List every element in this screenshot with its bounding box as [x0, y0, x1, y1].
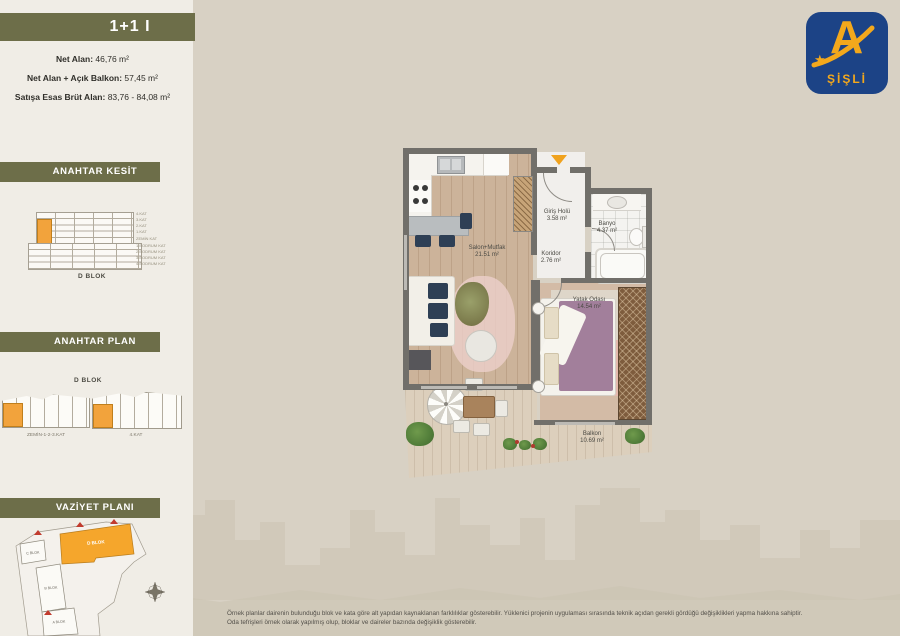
kitchen-sink	[437, 156, 465, 174]
balcony-table	[463, 396, 495, 418]
window	[404, 235, 407, 290]
key-plan-block-caption: D BLOK	[48, 377, 128, 384]
bed	[540, 298, 616, 396]
room-name: Salon+Mutfak	[469, 245, 506, 252]
room-label-balcony: Balkon 10.69 m²	[580, 431, 604, 445]
net-plus-balcony-label: Net Alan + Açık Balkon:	[27, 73, 122, 83]
key-section-diagram-lower	[28, 243, 142, 270]
dining-chair	[439, 235, 455, 247]
window	[477, 386, 517, 389]
unit-type-header: 1+1 I	[0, 13, 195, 41]
sofa	[407, 276, 455, 346]
sink-basin	[440, 159, 450, 170]
room-name: Koridor	[541, 251, 561, 258]
sink-basin	[452, 159, 461, 170]
room-area: 3.58 m²	[544, 216, 570, 223]
unit-type-label: 1+1 I	[109, 18, 150, 35]
gross-area-value: 83,76 - 84,08 m²	[108, 92, 170, 102]
key-section-block-caption: D BLOK	[52, 273, 132, 280]
key-plan-variant-label: 4.KAT	[96, 433, 176, 438]
plant	[533, 438, 547, 450]
bathtub-inner	[600, 253, 645, 279]
room-area: 21.51 m²	[469, 252, 506, 259]
key-section-diagram-upper	[36, 212, 134, 245]
kitchen-cabinet	[483, 154, 509, 175]
flower	[515, 440, 519, 444]
compass-icon	[145, 582, 165, 602]
flower	[531, 444, 535, 448]
net-plus-balcony-value: 57,45 m²	[124, 73, 158, 83]
area-summary: Net Alan: 46,76 m² Net Alan + Açık Balko…	[0, 50, 185, 107]
room-label-entry-hall: Giriş Holü 3.58 m²	[544, 209, 570, 223]
room-area: 14.54 m²	[573, 304, 606, 311]
key-plan-title: ANAHTAR PLAN	[54, 336, 136, 347]
sidebar: 1+1 I Net Alan: 46,76 m² Net Alan + Açık…	[0, 0, 193, 636]
wall	[646, 188, 652, 283]
burner	[413, 185, 419, 191]
sofa-cushion	[428, 283, 448, 299]
key-plan-top-floor	[92, 392, 182, 429]
balcony-chair	[453, 420, 470, 433]
disclaimer-line-2: Oda tefrişleri örnek olarak yapılmış olu…	[227, 618, 877, 627]
wall	[646, 283, 652, 425]
room-area: 10.69 m²	[580, 438, 604, 445]
disclaimer: Örnek planlar dairenin bulunduğu blok ve…	[227, 609, 877, 627]
room-area: 2.76 m²	[541, 258, 561, 265]
wall	[561, 278, 652, 283]
highlighted-unit	[93, 404, 113, 428]
room-label-bathroom: Banyo 4.37 m²	[597, 221, 617, 235]
logo-brand-name: ŞİŞLİ	[806, 72, 888, 86]
key-plan-lower-floors	[2, 394, 90, 428]
net-area-value: 46,76 m²	[95, 54, 129, 64]
armchair	[465, 330, 497, 362]
section-header-key-section: ANAHTAR KESİT	[0, 162, 160, 182]
nightstand	[532, 302, 545, 315]
site-plan-title: VAZİYET PLANI	[56, 502, 134, 513]
burner	[413, 198, 419, 204]
stove	[409, 180, 431, 212]
room-name: Yatak Odası	[573, 297, 606, 304]
floor-plan: Salon+Mutfak 21.51 m² Giriş Holü 3.58 m²…	[403, 140, 659, 488]
floor-label: ZEMİN KAT	[136, 236, 180, 242]
wall	[585, 167, 591, 227]
highlighted-unit	[3, 403, 23, 427]
bathroom-vanity	[593, 194, 641, 211]
entry-closet	[513, 176, 533, 232]
pillow	[544, 307, 559, 339]
nightstand	[532, 380, 545, 393]
room-label-corridor: Koridor 2.76 m²	[541, 251, 561, 265]
room-name: Balkon	[580, 431, 604, 438]
plant	[406, 422, 434, 446]
wall	[403, 148, 537, 154]
floor-label: 4.BODRUM KAT	[136, 261, 180, 267]
site-plan-map: C BLOK D BLOK B BLOK A BLOK	[8, 514, 178, 636]
key-section-title: ANAHTAR KESİT	[53, 166, 138, 177]
net-area-line: Net Alan: 46,76 m²	[0, 50, 185, 69]
disclaimer-line-1: Örnek planlar dairenin bulunduğu blok ve…	[227, 609, 877, 618]
umbrella-pole	[444, 402, 448, 406]
balcony-chair	[473, 423, 490, 436]
washbasin	[607, 196, 627, 209]
highlighted-unit-column	[37, 219, 52, 246]
bedroom-wardrobe	[618, 287, 648, 420]
window	[421, 386, 467, 389]
room-label-bedroom: Yatak Odası 14.54 m²	[573, 297, 606, 311]
net-area-label: Net Alan:	[56, 54, 93, 64]
room-name: Banyo	[597, 221, 617, 228]
room-label-living-kitchen: Salon+Mutfak 21.51 m²	[469, 245, 506, 259]
section-header-key-plan: ANAHTAR PLAN	[0, 332, 160, 352]
sofa-cushion	[430, 323, 448, 337]
gross-area-label: Satışa Esas Brüt Alan:	[15, 92, 105, 102]
burner	[422, 185, 428, 191]
dining-chair	[460, 213, 472, 229]
wall	[591, 188, 652, 194]
pillow	[544, 353, 559, 385]
balcony-chair	[495, 400, 508, 417]
room-name: Giriş Holü	[544, 209, 570, 216]
window	[555, 422, 615, 425]
gross-area-line: Satışa Esas Brüt Alan: 83,76 - 84,08 m²	[0, 88, 185, 107]
key-plan-variant-label: ZEMİN-1-2-3.KAT	[6, 433, 86, 438]
sofa-cushion	[428, 303, 448, 319]
plant	[625, 428, 645, 444]
dining-chair	[415, 235, 431, 247]
logo-letter-a: A	[830, 10, 870, 64]
logo-star-icon: ★	[814, 52, 826, 68]
floor-label: 1.KAT	[136, 229, 180, 235]
sisli-logo: A ★ ŞİŞLİ	[806, 12, 888, 94]
brochure-page: 1+1 I Net Alan: 46,76 m² Net Alan + Açık…	[0, 0, 900, 636]
net-plus-balcony-line: Net Alan + Açık Balkon: 57,45 m²	[0, 69, 185, 88]
room-area: 4.37 m²	[597, 228, 617, 235]
burner	[422, 198, 428, 204]
entrance-arrow-icon	[551, 155, 567, 165]
plant	[519, 440, 531, 450]
